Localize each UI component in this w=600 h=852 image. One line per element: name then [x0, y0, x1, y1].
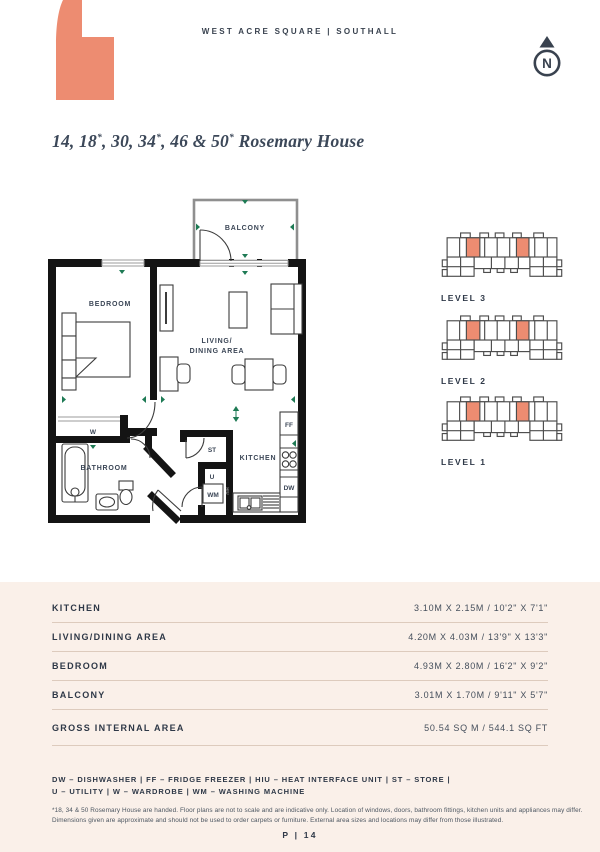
row-value: 50.54 SQ M / 544.1 SQ FT	[424, 723, 548, 733]
disclaimer-line-1: *18, 34 & 50 Rosemary House are handed. …	[52, 806, 582, 816]
level-2-label: LEVEL 2	[441, 376, 571, 386]
washing-machine-label: WM	[207, 492, 219, 499]
table-row: BALCONY 3.01M X 1.70M / 9'11" X 5'7"	[52, 681, 548, 710]
row-label: BALCONY	[52, 690, 106, 700]
store-label: ST	[208, 447, 216, 454]
level-1-plan	[441, 396, 563, 448]
legend-line-2: U – UTILITY | W – WARDROBE | WM – WASHIN…	[52, 786, 450, 798]
floor-plan: BALCONY BEDROOM LIVING/ DINING AREA BATH…	[40, 190, 330, 535]
row-value: 4.93M X 2.80M / 16'2" X 9'2"	[414, 661, 548, 671]
disclaimer-line-2: Dimensions given are approximate and sho…	[52, 816, 582, 826]
compass-n-label: N	[542, 56, 552, 71]
level-3-label: LEVEL 3	[441, 293, 571, 303]
header-brand: WEST ACRE SQUARE | SOUTHALL	[0, 27, 600, 36]
row-label: LIVING/DINING AREA	[52, 632, 167, 642]
page-number: P | 14	[0, 830, 600, 840]
living-label-line2: DINING AREA	[190, 348, 245, 355]
level-key-2: LEVEL 2	[441, 315, 571, 386]
page-title: 14, 18*, 30, 34*, 46 & 50* Rosemary Hous…	[52, 131, 364, 152]
level-1-label: LEVEL 1	[441, 457, 571, 467]
level-key-3: LEVEL 3	[441, 232, 571, 303]
specifications-panel: KITCHEN 3.10M X 2.15M / 10'2" X 7'1" LIV…	[0, 582, 600, 852]
furniture	[62, 284, 302, 512]
living-label-line1: LIVING/	[202, 338, 233, 345]
balcony-label: BALCONY	[225, 225, 265, 232]
kitchen-label: KITCHEN	[240, 455, 277, 462]
bathroom-label: BATHROOM	[80, 465, 127, 472]
row-label: KITCHEN	[52, 603, 101, 613]
fridge-freezer-label: FF	[285, 422, 293, 429]
level-2-plan	[441, 315, 563, 367]
level-3-plan	[441, 232, 563, 284]
disclaimer: *18, 34 & 50 Rosemary House are handed. …	[52, 806, 582, 825]
legend-line-1: DW – DISHWASHER | FF – FRIDGE FREEZER | …	[52, 774, 450, 786]
row-value: 4.20M X 4.03M / 13'9" X 13'3"	[408, 632, 548, 642]
table-row: BEDROOM 4.93M X 2.80M / 16'2" X 9'2"	[52, 652, 548, 681]
abbreviation-legend: DW – DISHWASHER | FF – FRIDGE FREEZER | …	[52, 774, 450, 797]
row-label: GROSS INTERNAL AREA	[52, 723, 185, 733]
row-value: 3.01M X 1.70M / 9'11" X 5'7"	[415, 690, 548, 700]
north-compass-icon: N	[524, 34, 570, 80]
row-label: BEDROOM	[52, 661, 108, 671]
brand-logo	[50, 0, 116, 102]
hiu-label: HIU	[225, 487, 230, 494]
table-row: LIVING/DINING AREA 4.20M X 4.03M / 13'9"…	[52, 623, 548, 652]
dimensions-table: KITCHEN 3.10M X 2.15M / 10'2" X 7'1" LIV…	[52, 594, 548, 746]
level-key-1: LEVEL 1	[441, 396, 571, 467]
table-row: GROSS INTERNAL AREA 50.54 SQ M / 544.1 S…	[52, 710, 548, 746]
row-value: 3.10M X 2.15M / 10'2" X 7'1"	[414, 603, 548, 613]
dishwasher-label: DW	[284, 485, 296, 492]
wardrobe-label: W	[90, 429, 97, 436]
utility-label: U	[210, 474, 215, 481]
brochure-page: WEST ACRE SQUARE | SOUTHALL N 14, 18*, 3…	[0, 0, 600, 852]
bedroom-label: BEDROOM	[89, 301, 131, 308]
table-row: KITCHEN 3.10M X 2.15M / 10'2" X 7'1"	[52, 594, 548, 623]
